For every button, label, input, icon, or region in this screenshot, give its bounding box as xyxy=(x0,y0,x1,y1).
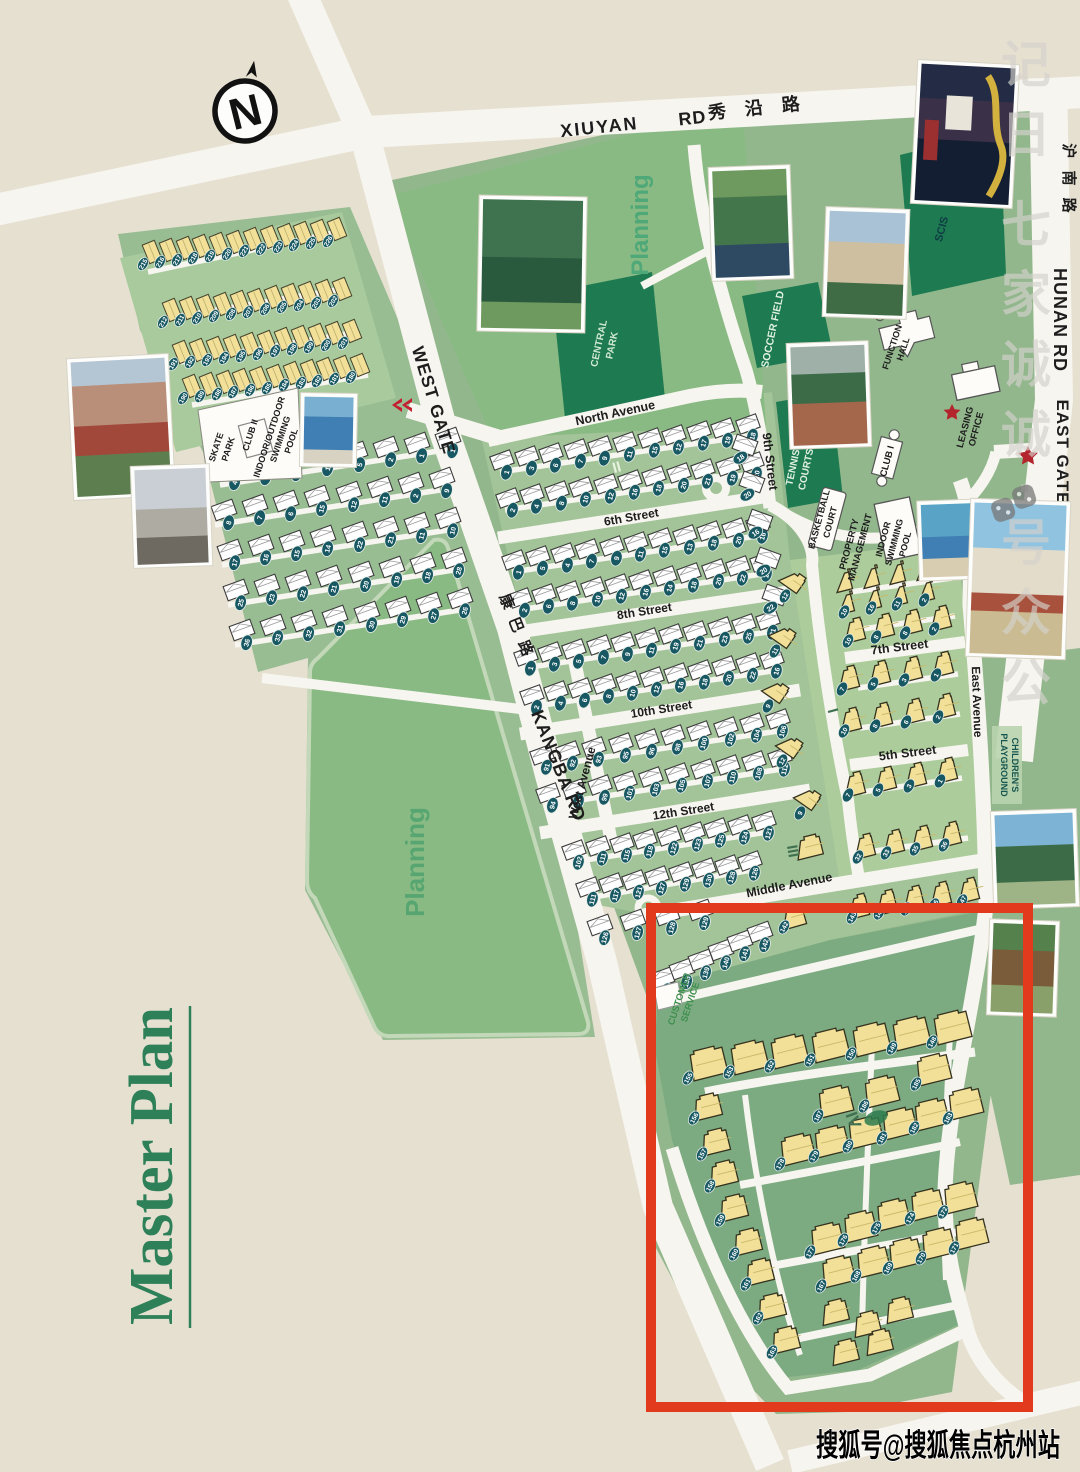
svg-text:搜狐号@搜狐焦点杭州站: 搜狐号@搜狐焦点杭州站 xyxy=(816,1428,1060,1463)
svg-text:七: 七 xyxy=(1001,197,1051,253)
svg-text:沪 南 路: 沪 南 路 xyxy=(1060,143,1078,216)
svg-text:PLAYGROUND: PLAYGROUND xyxy=(999,733,1009,797)
svg-text:CHILDREN'S: CHILDREN'S xyxy=(1010,738,1020,793)
svg-text:号: 号 xyxy=(1001,515,1051,571)
svg-text:Planning: Planning xyxy=(400,807,430,917)
svg-text:EAST GATE: EAST GATE xyxy=(1053,399,1072,504)
svg-text:RD: RD xyxy=(677,107,707,130)
svg-text:HUNAN RD: HUNAN RD xyxy=(1050,268,1070,372)
svg-text:众: 众 xyxy=(1001,585,1051,641)
svg-text:诚: 诚 xyxy=(1001,337,1051,393)
svg-text:记: 记 xyxy=(1001,37,1051,93)
svg-text:公: 公 xyxy=(1001,655,1051,711)
svg-text:Planning: Planning xyxy=(627,174,654,275)
svg-text:家: 家 xyxy=(1001,267,1051,323)
svg-text:Master Plan: Master Plan xyxy=(118,1007,186,1325)
svg-text:诚: 诚 xyxy=(1001,407,1051,463)
svg-text:日: 日 xyxy=(1001,107,1051,163)
svg-text:East Avenue: East Avenue xyxy=(969,666,985,738)
